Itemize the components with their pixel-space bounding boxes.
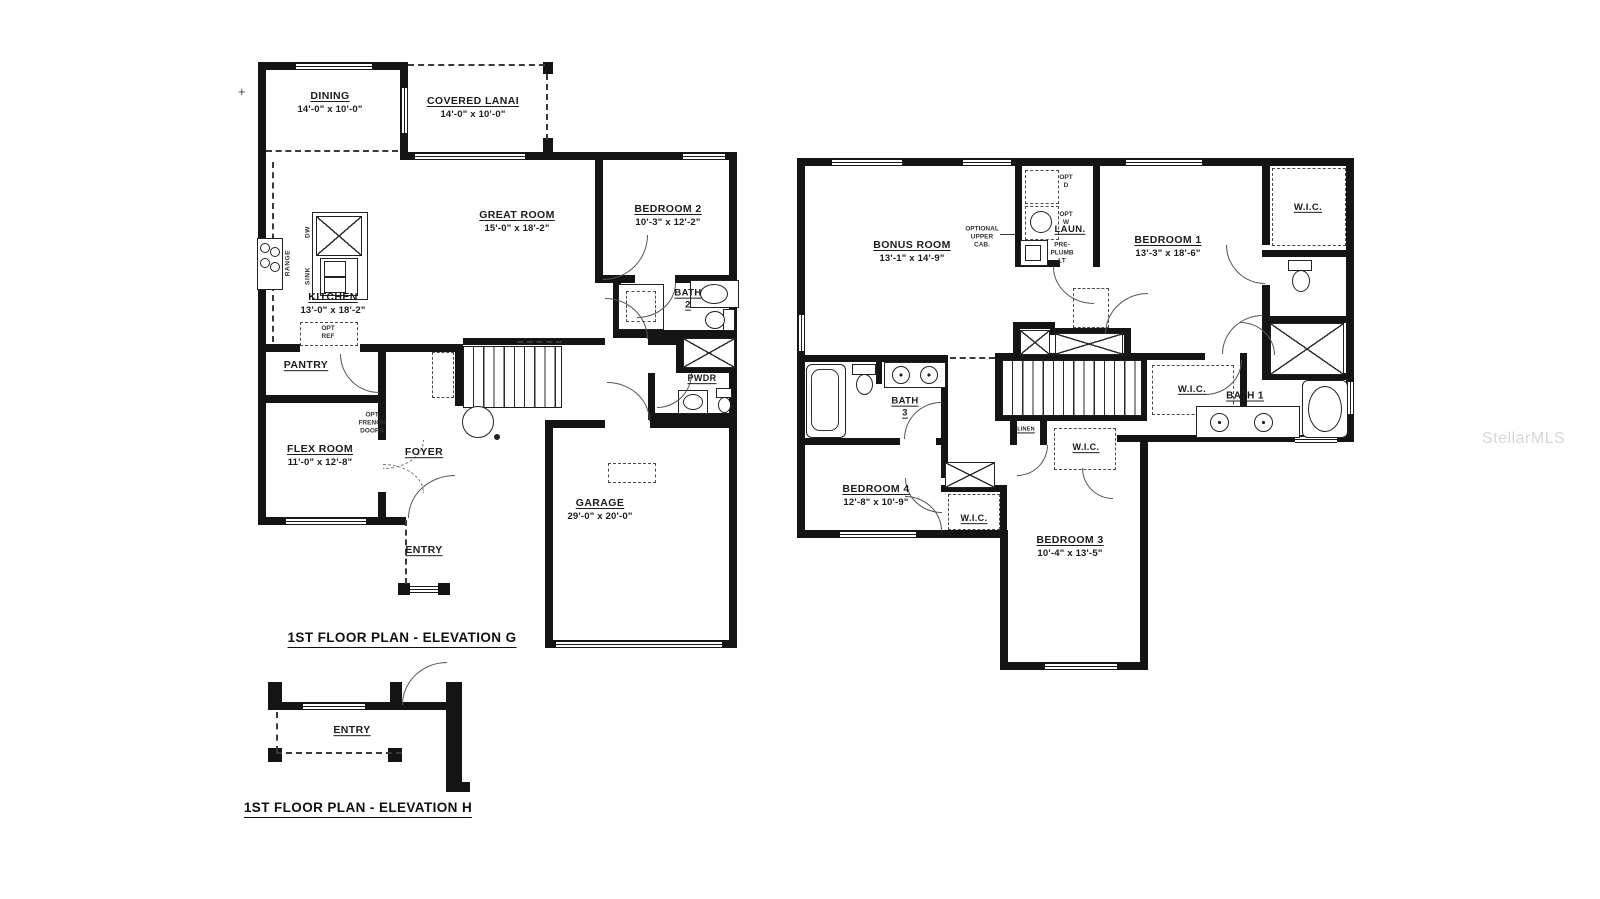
room-name: GARAGE: [567, 497, 632, 511]
wall: [650, 420, 737, 428]
room-dims: 13'-3" x 18'-6": [1134, 248, 1201, 260]
toilet-bowl: [718, 397, 731, 413]
sink-icon: [683, 394, 703, 410]
door-arc: [1082, 468, 1113, 499]
door-arc: [340, 354, 379, 393]
room-name: KITCHEN: [300, 291, 365, 305]
room-name: BATH: [674, 288, 701, 300]
wall: [1093, 162, 1100, 267]
wall: [1000, 530, 1008, 670]
wall: [398, 583, 410, 595]
sink-icon: [1210, 413, 1229, 432]
drain-dot: [494, 434, 500, 440]
room-name: PANTRY: [284, 359, 328, 373]
toilet-bowl: [856, 374, 873, 395]
screen-wall-dashed: [546, 74, 548, 140]
room-label-wic-2: W.I.C.: [1178, 384, 1206, 396]
room-label-bedroom-4: BEDROOM 4 12'-8" x 10'-9": [842, 483, 909, 509]
window-symbol: [1045, 663, 1117, 670]
door-arc: [603, 235, 648, 280]
room-name: BATH 1: [1226, 390, 1264, 403]
bathtub-inner: [1308, 386, 1342, 432]
toilet-bowl: [705, 311, 725, 329]
wall: [797, 355, 948, 362]
wall: [1040, 421, 1047, 445]
sink-label: SINK: [305, 267, 312, 285]
window-symbol: [832, 159, 902, 166]
room-name: BEDROOM 1: [1134, 234, 1201, 248]
wall: [1140, 435, 1148, 670]
stair-rail-dashed: [950, 357, 995, 359]
wall: [545, 420, 553, 648]
room-dims: 11'-0" x 12'-8": [287, 457, 353, 469]
opt-dryer-label: OPT D: [1059, 174, 1072, 190]
wall: [360, 344, 463, 352]
room-dims: 12'-8" x 10'-9": [842, 497, 909, 509]
room-label-garage: GARAGE 29'-0" x 20'-0": [567, 497, 632, 523]
wall: [1013, 322, 1020, 360]
window-symbol: [410, 586, 438, 593]
optional-upper-cab-label: OPTIONAL UPPER CAB.: [965, 225, 999, 248]
window-symbol: [963, 159, 1011, 166]
room-dims: 14'-0" x 10'-0": [427, 109, 519, 121]
burner-icon: [260, 258, 270, 268]
room-dims: 29'-0" x 20'-0": [567, 511, 632, 523]
room-name: FLEX ROOM: [287, 443, 353, 457]
room-label-pwdr: PWDR: [687, 373, 716, 385]
room-name: PWDR: [687, 373, 716, 385]
room-name: BEDROOM 3: [1036, 534, 1103, 548]
room-label-wic-3: W.I.C.: [1073, 442, 1100, 454]
room-dims: 10'-4" x 13'-5": [1036, 548, 1103, 560]
linen-closet: [683, 338, 735, 368]
leader-line: [1000, 234, 1016, 235]
window-symbol: [401, 88, 408, 133]
room-name: W.I.C.: [1178, 384, 1206, 396]
room-label-pantry: PANTRY: [284, 359, 328, 373]
room-label-foyer: FOYER: [405, 446, 443, 460]
wall: [1000, 485, 1007, 535]
caption-elevation-h: 1ST FLOOR PLAN - ELEVATION H: [244, 800, 472, 818]
wall: [388, 748, 402, 762]
room-dims: 15'-0" x 18'-2": [479, 223, 555, 235]
room-label-great-room: GREAT ROOM 15'-0" x 18'-2": [479, 209, 555, 235]
window-symbol: [1126, 159, 1202, 166]
room-label-dining: DINING 14'-0" x 10'-0": [297, 90, 362, 116]
front-door-arc: [402, 662, 447, 705]
room-name: W.I.C.: [1073, 442, 1100, 454]
wall: [378, 492, 386, 525]
sliding-door-symbol: [415, 153, 525, 160]
sink-icon: [920, 366, 938, 384]
burner-icon: [270, 262, 280, 272]
shower-icon: [1270, 323, 1344, 375]
room-dims: 13'-1" x 14'-9": [873, 253, 951, 265]
toilet-bowl: [1292, 270, 1310, 292]
burner-icon: [260, 243, 270, 253]
room-name: LINEN: [1017, 426, 1035, 433]
range-label: RANGE: [285, 250, 292, 276]
room-name: ENTRY: [333, 724, 370, 738]
screen-wall-dashed: [408, 64, 545, 66]
wall: [438, 583, 450, 595]
caption-elevation-g: 1ST FLOOR PLAN - ELEVATION G: [288, 630, 517, 648]
door-arc: [1105, 293, 1148, 334]
room-label-bath-3: BATH 3: [891, 396, 918, 421]
dishwasher-icon: [316, 216, 362, 256]
room-label-wic-4: W.I.C.: [961, 513, 988, 525]
stairs: [1002, 360, 1142, 416]
wall: [729, 152, 737, 648]
room-divider-dashed: [266, 150, 398, 152]
laundry-tub-basin: [1025, 245, 1041, 261]
wall: [545, 420, 605, 428]
wall: [1145, 353, 1205, 360]
door-arc: [1053, 267, 1094, 304]
window-symbol: [798, 315, 805, 351]
water-heater-icon: [462, 406, 494, 438]
opt-ref-label: OPT REF: [321, 325, 334, 341]
opt-washer-label: OPT W: [1059, 211, 1072, 227]
room-label-bonus-room: BONUS ROOM 13'-1" x 14'-9": [873, 239, 951, 265]
window-symbol: [840, 531, 916, 538]
window-symbol: [683, 153, 725, 160]
wall: [797, 438, 900, 445]
room-label-bath-1: BATH 1: [1226, 390, 1264, 403]
wall: [378, 352, 386, 400]
wall: [876, 362, 882, 384]
window-symbol: [303, 703, 365, 710]
wall: [543, 138, 553, 154]
wall: [648, 413, 737, 420]
door-arc: [607, 382, 650, 421]
opt-french-door-arc: [383, 464, 424, 493]
wall: [268, 682, 282, 708]
room-name: BEDROOM 2: [634, 203, 701, 217]
wall: [995, 353, 1002, 421]
wall: [595, 160, 603, 282]
door-arc: [1017, 445, 1048, 476]
wall: [1262, 250, 1346, 257]
room-name: DINING: [297, 90, 362, 104]
wall: [1262, 158, 1270, 245]
room-label-entry: ENTRY: [405, 544, 442, 558]
room-label-covered-lanai: COVERED LANAI 14'-0" x 10'-0": [427, 95, 519, 121]
wall: [268, 748, 282, 762]
stairs: [463, 346, 562, 408]
room-name: ENTRY: [405, 544, 442, 558]
room-label-bedroom-2: BEDROOM 2 10'-3" x 12'-2": [634, 203, 701, 229]
porch-dashed: [276, 712, 278, 752]
wall: [258, 395, 386, 403]
garage-ceiling-access: [608, 463, 656, 483]
porch-dashed: [276, 752, 402, 754]
sink-icon: [892, 366, 910, 384]
foyer-closet-dashed: [432, 352, 454, 398]
wall: [455, 344, 463, 406]
wall: [258, 344, 300, 352]
burner-icon: [270, 247, 280, 257]
room-name: BONUS ROOM: [873, 239, 951, 253]
room-name: BATH: [891, 396, 918, 408]
room-label-entry-h: ENTRY: [333, 724, 370, 738]
room-label-bath-2: BATH 2: [674, 288, 701, 313]
room-name: W.I.C.: [1294, 202, 1322, 214]
opt-french-doors-label: OPT FRENCH DOORS: [358, 411, 385, 434]
wall: [1262, 316, 1346, 323]
wall: [258, 62, 266, 525]
closet-icon: [1020, 330, 1050, 355]
opening-dashed: [517, 341, 562, 343]
crosshair-mark: +: [238, 84, 246, 99]
room-label-bedroom-1: BEDROOM 1 13'-3" x 18'-6": [1134, 234, 1201, 260]
sink-icon: [700, 284, 728, 304]
floor-plan-sheet: +: [0, 0, 1600, 899]
wall: [1010, 421, 1017, 445]
room-label-flex-room: FLEX ROOM 11'-0" x 12'-8": [287, 443, 353, 469]
room-name: FOYER: [405, 446, 443, 460]
washer-drum-icon: [1030, 211, 1052, 233]
room-name: W.I.C.: [961, 513, 988, 525]
window-symbol: [1347, 382, 1354, 414]
room-name: GREAT ROOM: [479, 209, 555, 223]
room-label-bedroom-3: BEDROOM 3 10'-4" x 13'-5": [1036, 534, 1103, 560]
room-label-linen: LINEN: [1017, 426, 1035, 433]
room-number: 2: [674, 300, 701, 312]
wall: [446, 782, 470, 792]
room-dims: 13'-0" x 18'-2": [300, 305, 365, 317]
room-name: BEDROOM 4: [842, 483, 909, 497]
window-symbol: [286, 518, 366, 525]
room-label-kitchen: KITCHEN 13'-0" x 18'-2": [300, 291, 365, 317]
kitchen-sink-basin: [324, 261, 346, 277]
wall: [390, 682, 402, 708]
garage-door-symbol: [556, 641, 722, 648]
closet-icon: [945, 462, 995, 488]
room-name: COVERED LANAI: [427, 95, 519, 109]
room-label-wic-1: W.I.C.: [1294, 202, 1322, 214]
door-arc: [637, 283, 676, 318]
room-dims: 14'-0" x 10'-0": [297, 104, 362, 116]
window-symbol: [296, 63, 372, 70]
door-arc: [1226, 245, 1265, 284]
stellar-mls-watermark: StellarMLS: [1482, 430, 1565, 448]
closet-icon: [1055, 333, 1123, 355]
sink-icon: [1254, 413, 1273, 432]
bathtub-inner: [811, 369, 839, 431]
pre-plumb-label: PRE- PLUMB LT: [1050, 241, 1073, 264]
room-number: 3: [891, 408, 918, 420]
wall: [446, 682, 462, 792]
opt-dryer-dashed: [1025, 170, 1059, 204]
dw-label: DW: [305, 226, 312, 238]
room-dims: 10'-3" x 12'-2": [634, 217, 701, 229]
